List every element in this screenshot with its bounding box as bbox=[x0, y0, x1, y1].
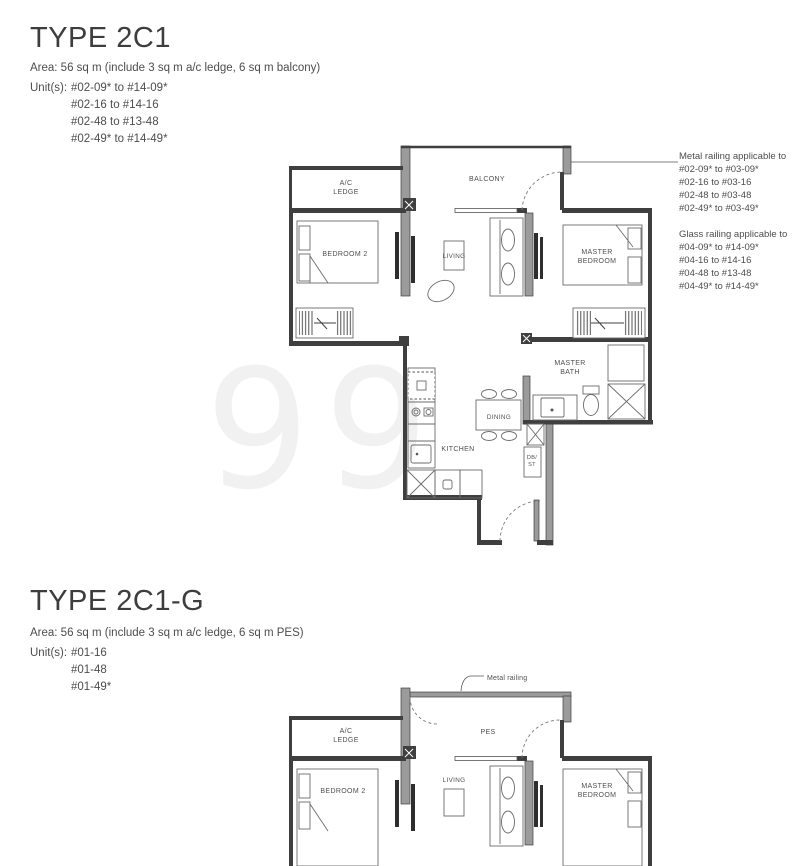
unit-range: #01-16 bbox=[71, 645, 111, 662]
room-label-master-bath: BATH bbox=[560, 369, 580, 376]
wall-junction-nodes bbox=[403, 746, 416, 759]
armchair bbox=[424, 276, 458, 306]
room-label-master-bedroom: MASTER bbox=[581, 249, 612, 256]
coffee-table bbox=[444, 789, 464, 816]
shower-box bbox=[608, 384, 645, 419]
sofa bbox=[490, 766, 523, 846]
kitchen-sink bbox=[411, 445, 431, 463]
sofa bbox=[490, 218, 523, 296]
bath-niche bbox=[608, 345, 644, 381]
area-text: Area: 56 sq m (include 3 sq m a/c ledge,… bbox=[30, 62, 320, 74]
metal-railing-line: #02-48 to #03-48 bbox=[679, 189, 800, 202]
room-label-living: LIVING bbox=[443, 253, 466, 260]
metal-railing-line: #02-49* to #03-49* bbox=[679, 202, 800, 215]
room-label-master-bath: MASTER bbox=[554, 360, 585, 367]
room-label-dining: DINING bbox=[487, 414, 511, 421]
bed-bedroom2 bbox=[297, 769, 378, 866]
sliding-door-track bbox=[455, 757, 517, 761]
room-label-master-bedroom: MASTER bbox=[581, 783, 612, 790]
glass-railing-line: #04-49* to #14-49* bbox=[679, 280, 800, 293]
metal-railing-line: #02-09* to #03-09* bbox=[679, 163, 800, 176]
walls bbox=[289, 147, 653, 545]
pes-gate-swing bbox=[410, 697, 437, 724]
room-label-bedroom2: BEDROOM 2 bbox=[320, 788, 365, 795]
gray-walls bbox=[401, 146, 571, 545]
unit-range: #01-49* bbox=[71, 679, 111, 696]
kitchen-counter bbox=[407, 368, 482, 498]
room-label-pes: PES bbox=[480, 729, 495, 736]
area-text-2: Area: 56 sq m (include 3 sq m a/c ledge,… bbox=[30, 627, 304, 639]
room-label-bedroom2: BEDROOM 2 bbox=[322, 251, 367, 258]
sliding-door-track bbox=[455, 209, 517, 213]
hob bbox=[412, 408, 433, 416]
vanity-sink bbox=[533, 395, 577, 420]
room-label-ac-ledge: A/C bbox=[340, 180, 353, 187]
washer-box bbox=[407, 470, 435, 498]
unit-range: #02-48 to #13-48 bbox=[71, 114, 168, 131]
metal-railing-leader-line bbox=[461, 676, 484, 691]
page-title-2: TYPE 2C1-G bbox=[30, 585, 204, 618]
glass-railing-line: #04-48 to #13-48 bbox=[679, 267, 800, 280]
unit-range: #02-16 to #14-16 bbox=[71, 97, 168, 114]
glass-railing-line: #04-09* to #14-09* bbox=[679, 241, 800, 254]
metal-railing-line: #02-16 to #03-16 bbox=[679, 176, 800, 189]
page-title: TYPE 2C1 bbox=[30, 22, 171, 55]
metal-railing-label: Metal railing bbox=[487, 675, 527, 682]
railing-annotations: Metal railing applicable to #02-09* to #… bbox=[679, 150, 800, 293]
room-label-ac-ledge: A/C bbox=[340, 728, 353, 735]
unit-range: #02-49* to #14-49* bbox=[71, 131, 168, 148]
pes-door-swing bbox=[522, 720, 560, 758]
room-label-ac-ledge: LEDGE bbox=[333, 737, 358, 744]
room-label-kitchen: KITCHEN bbox=[441, 446, 474, 453]
room-label-ac-ledge: LEDGE bbox=[333, 189, 358, 196]
units-label: Unit(s): bbox=[30, 645, 71, 696]
floor-plan-type-2c1-g: Metal railing bbox=[280, 658, 680, 866]
wardrobe-master bbox=[573, 308, 645, 338]
room-label-dbst: ST bbox=[528, 462, 536, 468]
units-list-2: Unit(s): #01-16 #01-48 #01-49* bbox=[30, 645, 111, 696]
room-label-dbst: DB/ bbox=[527, 455, 537, 461]
balcony-door-swing bbox=[522, 172, 562, 210]
wardrobe-bedroom2 bbox=[296, 308, 353, 338]
units-label: Unit(s): bbox=[30, 80, 71, 148]
room-label-living: LIVING bbox=[443, 777, 466, 784]
metal-railing-title: Metal railing applicable to bbox=[679, 150, 800, 163]
unit-range: #01-48 bbox=[71, 662, 111, 679]
toilet bbox=[583, 386, 599, 416]
room-label-master-bedroom: BEDROOM bbox=[578, 792, 617, 799]
room-label-balcony: BALCONY bbox=[469, 176, 505, 183]
unit-range: #02-09* to #14-09* bbox=[71, 80, 168, 97]
glass-railing-title: Glass railing applicable to bbox=[679, 228, 800, 241]
master-bath-fixtures bbox=[533, 345, 645, 420]
floor-plan-type-2c1: A/C LEDGE BALCONY BEDROOM 2 LIVING MASTE… bbox=[280, 138, 680, 563]
room-label-master-bedroom: BEDROOM bbox=[578, 258, 617, 265]
dbst-closet bbox=[524, 424, 544, 477]
gray-walls bbox=[401, 688, 571, 845]
units-list: Unit(s): #02-09* to #14-09* #02-16 to #1… bbox=[30, 80, 168, 148]
glass-railing-line: #04-16 to #14-16 bbox=[679, 254, 800, 267]
fridge bbox=[408, 372, 435, 399]
